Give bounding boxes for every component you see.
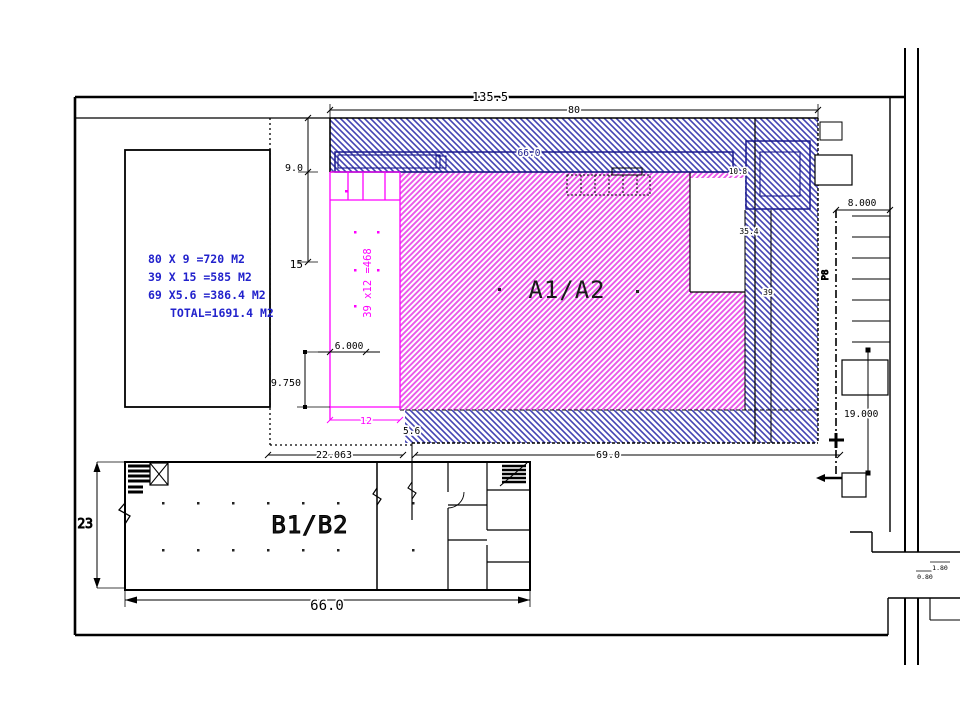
dim-south-depth: 5.6 xyxy=(403,426,420,437)
building-b: B1/B2 23 66.0 xyxy=(77,462,530,614)
gate-dim-1: 1.80 xyxy=(932,564,948,572)
site-plan-drawing: 1.80 0.80 80 X 9 =720 M2 39 X 15 =585 M2… xyxy=(0,0,960,720)
parking-area: 8.000 P8 19.000 xyxy=(815,122,893,497)
dim-yard-depth: 19.000 xyxy=(844,409,879,420)
left-building: 80 X 9 =720 M2 39 X 15 =585 M2 69 X5.6 =… xyxy=(125,150,274,407)
column-dot xyxy=(498,288,501,291)
area-calc-line-1: 80 X 9 =720 M2 xyxy=(148,252,245,266)
gate-dim-2: 0.80 xyxy=(917,573,933,581)
annex-area-label: 39 x12 =468 xyxy=(362,248,374,318)
annex-width-dim: 12 xyxy=(360,416,372,427)
dim-a-mid-depth: 15 xyxy=(290,258,303,271)
building-b-label: B1/B2 xyxy=(271,511,348,539)
parking-label: P8 xyxy=(821,270,831,281)
cad-site-plan-page: 1.80 0.80 80 X 9 =720 M2 39 X 15 =585 M2… xyxy=(0,0,960,720)
dim-band-width: 66.0 xyxy=(518,148,541,159)
dim-east-c: 10.8 xyxy=(729,167,748,176)
dim-inner-depth: 9.750 xyxy=(271,378,301,389)
dim-inner-width: 6.000 xyxy=(335,341,364,352)
dim-west-offset: 22.063 xyxy=(316,450,352,461)
area-calc-line-2: 39 X 15 =585 M2 xyxy=(148,270,252,284)
dim-east-a: 35.4 xyxy=(739,227,758,236)
dim-parking-depth: 8.000 xyxy=(848,198,877,209)
area-calc-line-4: TOTAL=1691.4 M2 xyxy=(170,306,274,320)
dim-b-depth: 23 xyxy=(77,517,93,532)
building-a: A1/A2 35.4 39 10.8 xyxy=(330,118,818,462)
dim-east-b: 39 xyxy=(763,288,773,297)
dim-b-width: 66.0 xyxy=(310,598,344,614)
dim-south-width: 69.0 xyxy=(596,450,620,461)
east-road: 1.80 0.80 xyxy=(850,48,960,665)
column-dot xyxy=(636,290,639,293)
dim-a-width: 80 xyxy=(568,105,580,116)
area-calc-line-3: 69 X5.6 =386.4 M2 xyxy=(148,288,266,302)
dim-a-top-depth: 9.0 xyxy=(285,163,303,174)
building-a-label: A1/A2 xyxy=(528,276,605,304)
dim-site-width: 135.5 xyxy=(472,90,508,104)
